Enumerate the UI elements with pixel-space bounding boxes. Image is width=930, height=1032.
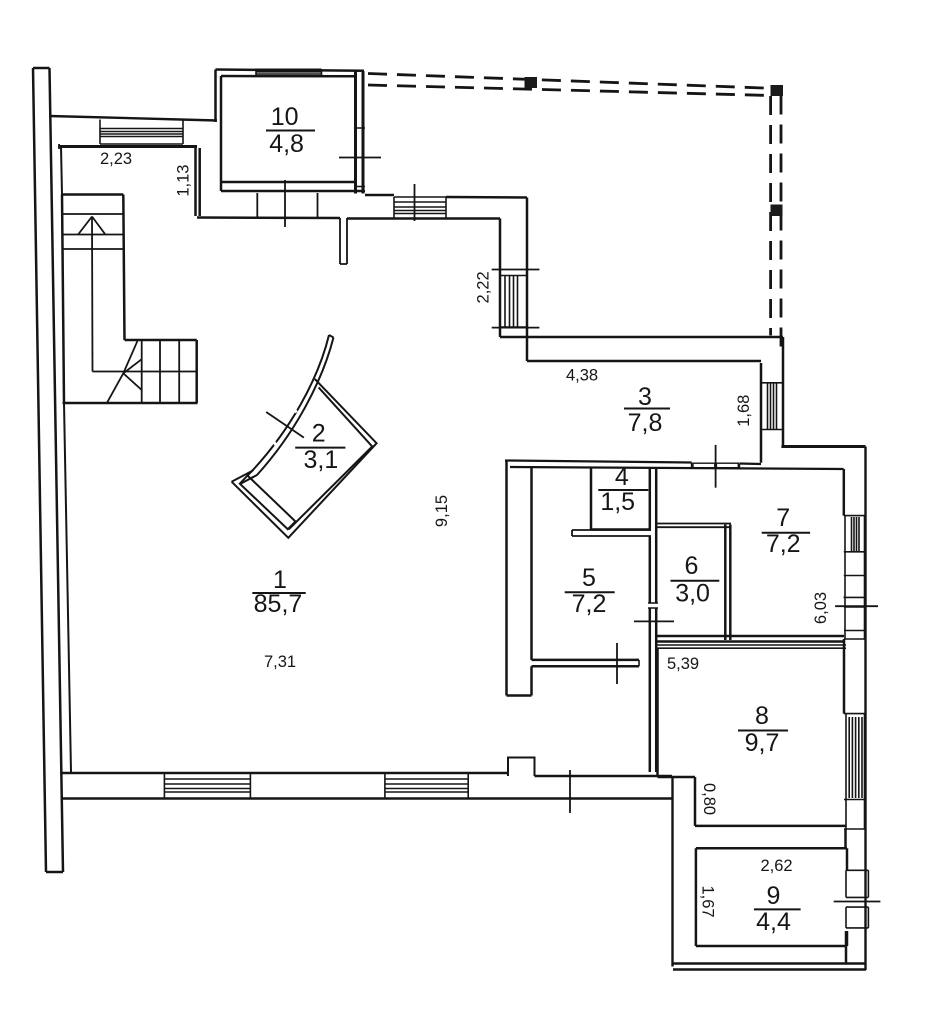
svg-text:4: 4 [615, 463, 629, 491]
svg-text:8: 8 [755, 702, 769, 730]
svg-text:7,2: 7,2 [572, 590, 607, 618]
svg-text:6,03: 6,03 [812, 592, 830, 624]
svg-text:0,80: 0,80 [700, 783, 718, 815]
svg-text:1,68: 1,68 [735, 395, 753, 427]
svg-text:3: 3 [638, 383, 652, 411]
svg-text:4,4: 4,4 [756, 908, 791, 936]
svg-text:6: 6 [684, 552, 698, 580]
svg-text:2,23: 2,23 [100, 150, 132, 168]
svg-text:7: 7 [776, 504, 790, 532]
svg-text:9: 9 [767, 882, 781, 910]
svg-text:2: 2 [312, 420, 326, 448]
svg-text:7,31: 7,31 [264, 653, 296, 671]
svg-text:3,0: 3,0 [675, 580, 710, 608]
svg-text:2,62: 2,62 [760, 857, 792, 875]
svg-text:7,8: 7,8 [628, 409, 663, 437]
svg-text:3,1: 3,1 [304, 446, 339, 474]
svg-text:85,7: 85,7 [254, 590, 303, 618]
svg-text:1,13: 1,13 [175, 165, 193, 197]
svg-text:5,39: 5,39 [667, 655, 699, 673]
svg-text:1,5: 1,5 [600, 488, 635, 516]
svg-text:2,22: 2,22 [475, 271, 493, 303]
svg-text:5: 5 [582, 564, 596, 592]
svg-text:9,7: 9,7 [745, 729, 780, 757]
svg-text:4,38: 4,38 [566, 367, 598, 385]
svg-text:1,67: 1,67 [699, 885, 717, 917]
svg-text:7,2: 7,2 [766, 530, 801, 558]
svg-text:9,15: 9,15 [433, 495, 451, 527]
svg-text:10: 10 [271, 103, 299, 131]
svg-text:4,8: 4,8 [269, 130, 304, 158]
